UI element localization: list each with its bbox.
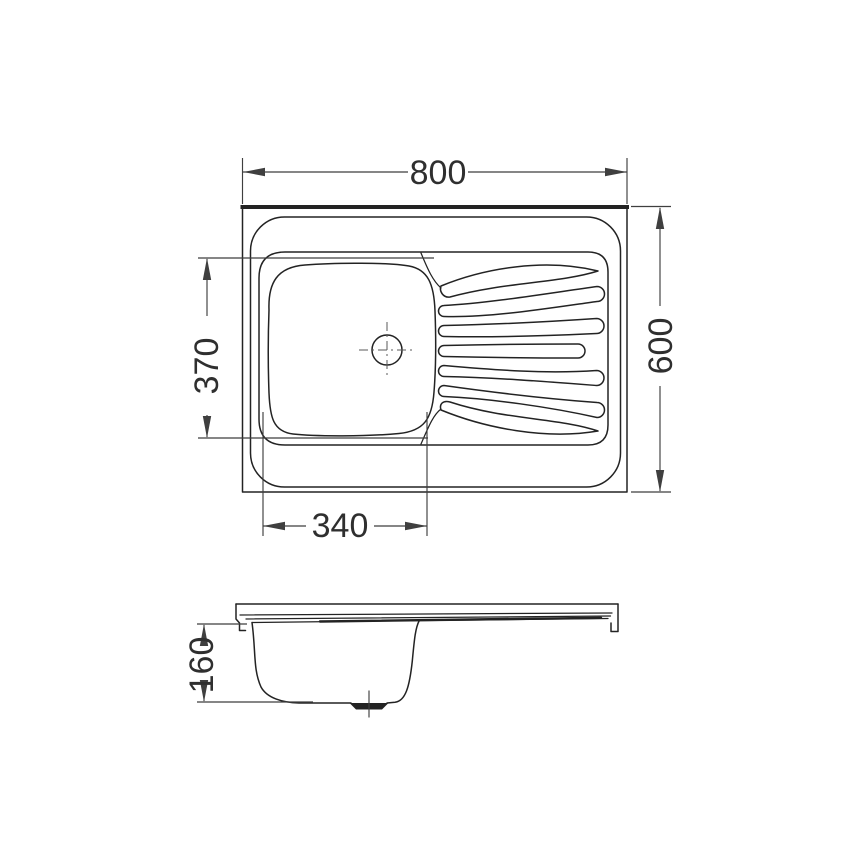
dim-label-340: 340 — [312, 507, 369, 545]
dim-800-arrow-left — [243, 168, 265, 176]
dim-800-arrow-right — [605, 168, 627, 176]
dim-overall-depth: 600 — [631, 207, 680, 493]
sink-technical-drawing-page: 800 600 370 340 — [0, 0, 868, 868]
dim-bowl-depth: 160 — [183, 624, 313, 702]
groove-neck-curve-bottom — [421, 409, 441, 444]
sink-technical-drawing: 800 600 370 340 — [0, 0, 868, 868]
side-bowl-right-wall — [387, 621, 419, 704]
groove-bottom-wedge — [440, 401, 598, 434]
drainer-grooves — [421, 253, 605, 444]
dim-370-extension-lines — [198, 258, 434, 438]
top-view: 800 600 370 340 — [188, 154, 680, 545]
groove-finger-4 — [439, 366, 605, 386]
dim-340-arrow-right — [405, 522, 427, 530]
side-view: 160 — [183, 604, 618, 718]
side-right-lip — [611, 604, 618, 632]
dim-label-160: 160 — [183, 637, 221, 694]
side-left-lip — [236, 604, 246, 631]
depression-outline — [259, 252, 608, 445]
side-bowl-left-wall — [252, 623, 351, 704]
groove-finger-1 — [439, 287, 605, 317]
groove-top-wedge — [440, 265, 598, 297]
dim-label-600: 600 — [642, 318, 680, 375]
dim-bowl-length: 370 — [188, 258, 434, 438]
dim-label-800: 800 — [410, 154, 467, 192]
side-rim-underside-line-1 — [240, 613, 612, 615]
dim-bowl-width: 340 — [263, 412, 427, 545]
dim-340-arrow-left — [263, 522, 285, 530]
dim-370-arrow-bottom — [203, 416, 211, 438]
groove-finger-3 — [439, 344, 586, 358]
dim-600-arrow-bottom — [656, 470, 664, 492]
dim-overall-width: 800 — [243, 154, 628, 204]
dim-370-arrow-top — [203, 258, 211, 280]
groove-finger-5 — [439, 386, 605, 418]
dim-600-arrow-top — [656, 207, 664, 229]
sink-outer-frame — [243, 207, 628, 492]
groove-finger-2 — [439, 319, 605, 337]
dim-label-370: 370 — [188, 338, 226, 395]
drain-centerlines — [359, 322, 415, 378]
